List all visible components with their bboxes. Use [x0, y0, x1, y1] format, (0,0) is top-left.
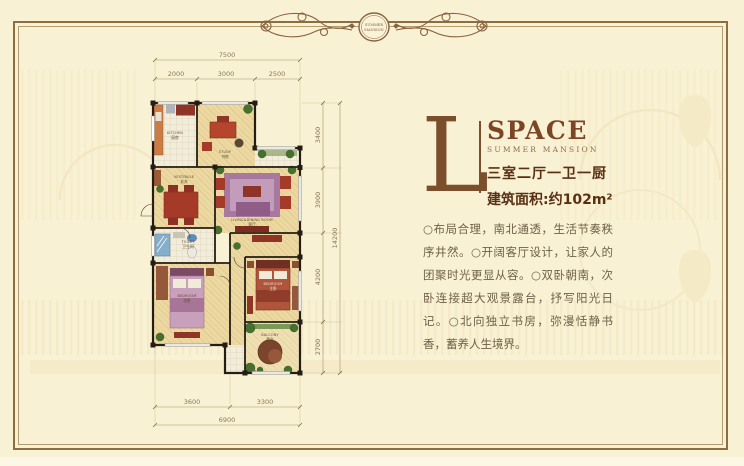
study-label-cn: 书房 — [221, 154, 229, 159]
space-subtitle: SUMMER MANSION — [487, 145, 613, 154]
plant-icon — [234, 243, 241, 250]
bedroom2-label-cn: 次卧 — [183, 298, 191, 303]
shaft-floor — [225, 345, 245, 373]
dim-bottom-total: 6900 — [219, 416, 236, 424]
ornament-diamond-left — [349, 23, 355, 29]
description-paragraph: ○布局合理，南北通透，生活节奏秩序井然。○开阔客厅设计，让家人的团聚时光更显从容… — [423, 218, 613, 356]
dim-top-seg3: 2500 — [269, 70, 286, 78]
dimensions-right: 3400 3900 4200 2700 14200 — [302, 101, 342, 375]
title-divider — [479, 121, 481, 193]
dim-top-total: 7500 — [219, 51, 236, 59]
kitchen-label-cn: 厨房 — [171, 135, 179, 140]
dim-bottom-seg2: 3300 — [257, 398, 274, 406]
master-label-cn: 主卧 — [269, 286, 277, 291]
dim-right-total: 14200 — [331, 228, 339, 249]
brochure-page: SUMMER MANSION — [0, 0, 744, 466]
layout-summary: 三室二厅一卫一厨 — [487, 163, 613, 183]
badge-text-line1: SUMMER — [365, 23, 383, 27]
living-label-cn: 客厅 — [248, 222, 256, 227]
bottom-strip — [0, 457, 744, 466]
ornament-badge — [359, 13, 389, 41]
building-area: 建筑面积:约102m² — [487, 189, 613, 209]
dim-bottom-seg1: 3600 — [184, 398, 201, 406]
dim-right-seg2: 3900 — [314, 192, 322, 209]
plant-icon — [290, 324, 298, 332]
dim-right-seg1: 3400 — [314, 127, 322, 144]
frame-inner-border — [18, 26, 723, 445]
plant-icon — [245, 323, 255, 333]
top-ornament: SUMMER MANSION — [254, 2, 494, 52]
vestibule-label-cn: 玄关 — [180, 179, 188, 184]
plant-icon — [156, 333, 164, 341]
plant-icon — [258, 150, 266, 158]
space-title: SPACE — [487, 118, 613, 143]
ornament-diamond-right — [393, 23, 399, 29]
title-block: SPACE SUMMER MANSION 三室二厅一卫一厨 建筑面积:约102m… — [487, 118, 613, 209]
dim-top-seg2: 3000 — [218, 70, 235, 78]
plant-icon — [157, 186, 164, 193]
balcony-label-cn: 露台 — [266, 337, 274, 342]
badge-text-line2: MANSION — [364, 28, 383, 32]
plant-icon — [286, 150, 294, 158]
dim-right-seg4: 2700 — [314, 339, 322, 356]
toilet-label-cn: 卫生间 — [182, 244, 194, 249]
dim-top-seg1: 2000 — [168, 70, 185, 78]
dim-right-seg3: 4200 — [314, 269, 322, 286]
floorplan: KITCHEN 厨房 STUDY 书房 VESTIBULE 玄关 LIVING&… — [140, 46, 355, 438]
plant-icon — [244, 105, 253, 114]
